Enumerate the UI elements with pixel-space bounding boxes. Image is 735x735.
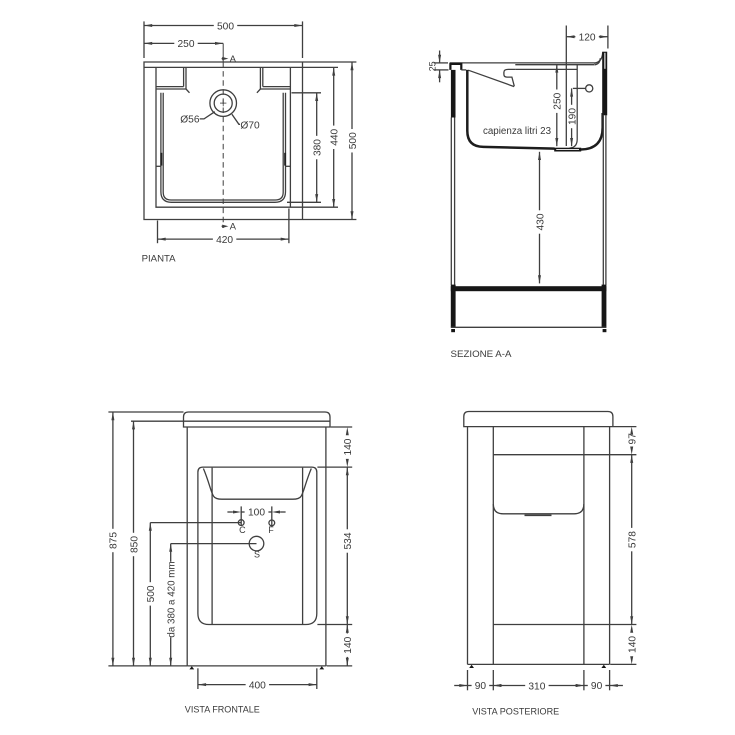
svg-text:140: 140 [628, 636, 639, 653]
svg-text:C: C [239, 525, 246, 535]
svg-text:capienza litri 23: capienza litri 23 [483, 126, 552, 137]
svg-text:da 380 a 420 mm: da 380 a 420 mm [167, 561, 178, 637]
svg-text:875: 875 [109, 532, 120, 549]
svg-text:VISTA POSTERIORE: VISTA POSTERIORE [472, 707, 559, 717]
svg-text:140: 140 [343, 636, 354, 653]
svg-text:380: 380 [313, 139, 324, 156]
svg-text:500: 500 [146, 585, 157, 602]
svg-text:534: 534 [343, 532, 354, 549]
svg-text:SEZIONE A-A: SEZIONE A-A [451, 349, 513, 359]
svg-text:500: 500 [217, 21, 234, 32]
svg-text:97: 97 [628, 433, 639, 445]
svg-text:PIANTA: PIANTA [142, 253, 177, 263]
svg-text:140: 140 [343, 438, 354, 455]
svg-text:250: 250 [553, 92, 564, 109]
svg-text:250: 250 [178, 39, 195, 50]
svg-text:500: 500 [348, 132, 359, 149]
svg-text:310: 310 [528, 681, 545, 692]
svg-text:A: A [230, 222, 237, 233]
svg-text:440: 440 [330, 128, 341, 145]
svg-text:A: A [230, 54, 237, 65]
svg-text:100: 100 [248, 507, 265, 518]
svg-text:420: 420 [216, 235, 233, 246]
svg-text:400: 400 [249, 680, 266, 691]
svg-text:Ø56: Ø56 [180, 114, 200, 125]
svg-text:90: 90 [591, 681, 603, 692]
svg-text:190: 190 [567, 108, 578, 125]
svg-text:90: 90 [475, 681, 487, 692]
svg-text:VISTA FRONTALE: VISTA FRONTALE [185, 704, 260, 714]
svg-text:25: 25 [428, 61, 438, 71]
svg-text:430: 430 [535, 213, 546, 230]
svg-text:850: 850 [129, 536, 140, 553]
svg-text:120: 120 [579, 33, 596, 44]
svg-text:Ø70: Ø70 [240, 120, 260, 131]
svg-text:F: F [268, 525, 274, 535]
svg-text:S: S [254, 549, 260, 559]
svg-text:578: 578 [628, 531, 639, 548]
